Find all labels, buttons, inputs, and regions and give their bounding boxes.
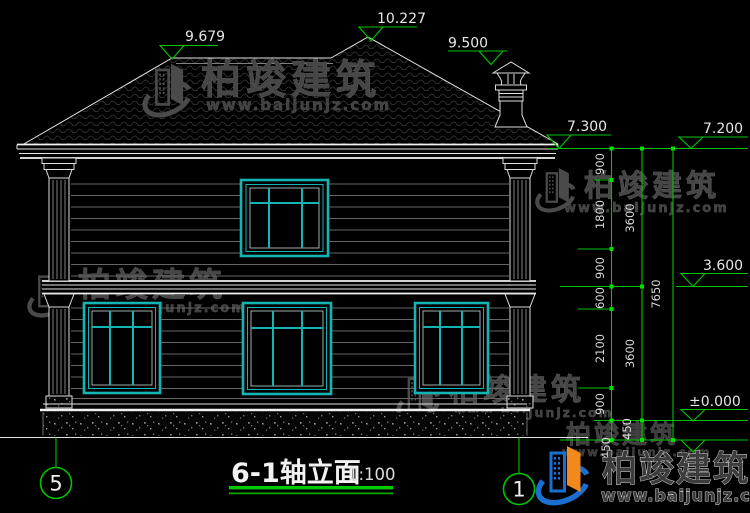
window-1f-center: [243, 303, 331, 394]
title-block: 6-1轴立面 1:100: [229, 457, 396, 494]
brand-url: www.baijunjz.com: [601, 486, 750, 505]
pilaster-left-2f: [42, 158, 76, 281]
dim-value: 450: [620, 418, 634, 440]
level-label: 7.200: [703, 121, 743, 137]
axis-bubble-right: 1: [504, 438, 535, 505]
floor-band: [42, 280, 536, 294]
level-chimney: 9.500: [448, 36, 507, 65]
cad-elevation-drawing: 柏竣建筑 www.baijunjz.com 柏竣建筑 www.baijunjz.…: [0, 0, 750, 513]
level-label: 10.227: [377, 11, 426, 27]
plinth-hatch: [43, 413, 527, 436]
title-underline-thick: [229, 486, 393, 489]
dim-value: 3600: [623, 203, 637, 232]
elevation-canvas: 柏竣建筑 www.baijunjz.com 柏竣建筑 www.baijunjz.…: [0, 0, 750, 513]
level-label: 9.500: [448, 36, 488, 52]
watermark-url-text: www.baijunjz.com: [564, 201, 729, 216]
level-second-floor: 3.600: [676, 258, 748, 287]
title-underline-thin: [229, 493, 393, 495]
level-eave-right: 7.200: [678, 121, 748, 149]
dim-value: 900: [593, 257, 607, 279]
dim-value: 2100: [593, 334, 607, 363]
dim-value: 900: [593, 153, 607, 175]
watermark-url-text: www.baijunjz.com: [206, 96, 391, 114]
dim-value: 600: [593, 287, 607, 309]
dim-value: 3600: [623, 339, 637, 368]
drawing-scale: 1:100: [348, 465, 396, 484]
pilaster-right-2f: [503, 158, 537, 281]
level-main-ridge: 10.227: [358, 11, 426, 41]
plinth-and-ground: [0, 404, 588, 438]
window-1f-right: [415, 303, 488, 393]
dim-value: 7650: [649, 279, 663, 308]
level-label: 7.300: [567, 119, 607, 135]
level-label: 9.679: [185, 29, 225, 45]
drawing-title: 6-1轴立面: [231, 457, 361, 489]
axis-bubble-left: 5: [41, 438, 72, 499]
dim-value: 1800: [593, 200, 607, 229]
dim-value: 900: [593, 393, 607, 415]
pilaster-right-1f: [505, 294, 535, 408]
window-1f-left: [84, 303, 160, 393]
window-2f-center: [241, 180, 328, 256]
axis-number: 1: [512, 478, 525, 502]
brand-logo-color: 柏竣建筑 www.baijunjz.com: [533, 446, 750, 510]
level-label: ±0.000: [689, 394, 741, 410]
level-left-ridge: 9.679: [160, 29, 225, 59]
eave-cornice: [17, 144, 558, 159]
level-ground: ±0.000: [680, 394, 748, 421]
level-label: 3.600: [703, 258, 743, 274]
brand-name: 柏竣建筑: [602, 449, 750, 490]
axis-number: 5: [49, 472, 62, 496]
pilaster-left-1f: [44, 294, 74, 408]
